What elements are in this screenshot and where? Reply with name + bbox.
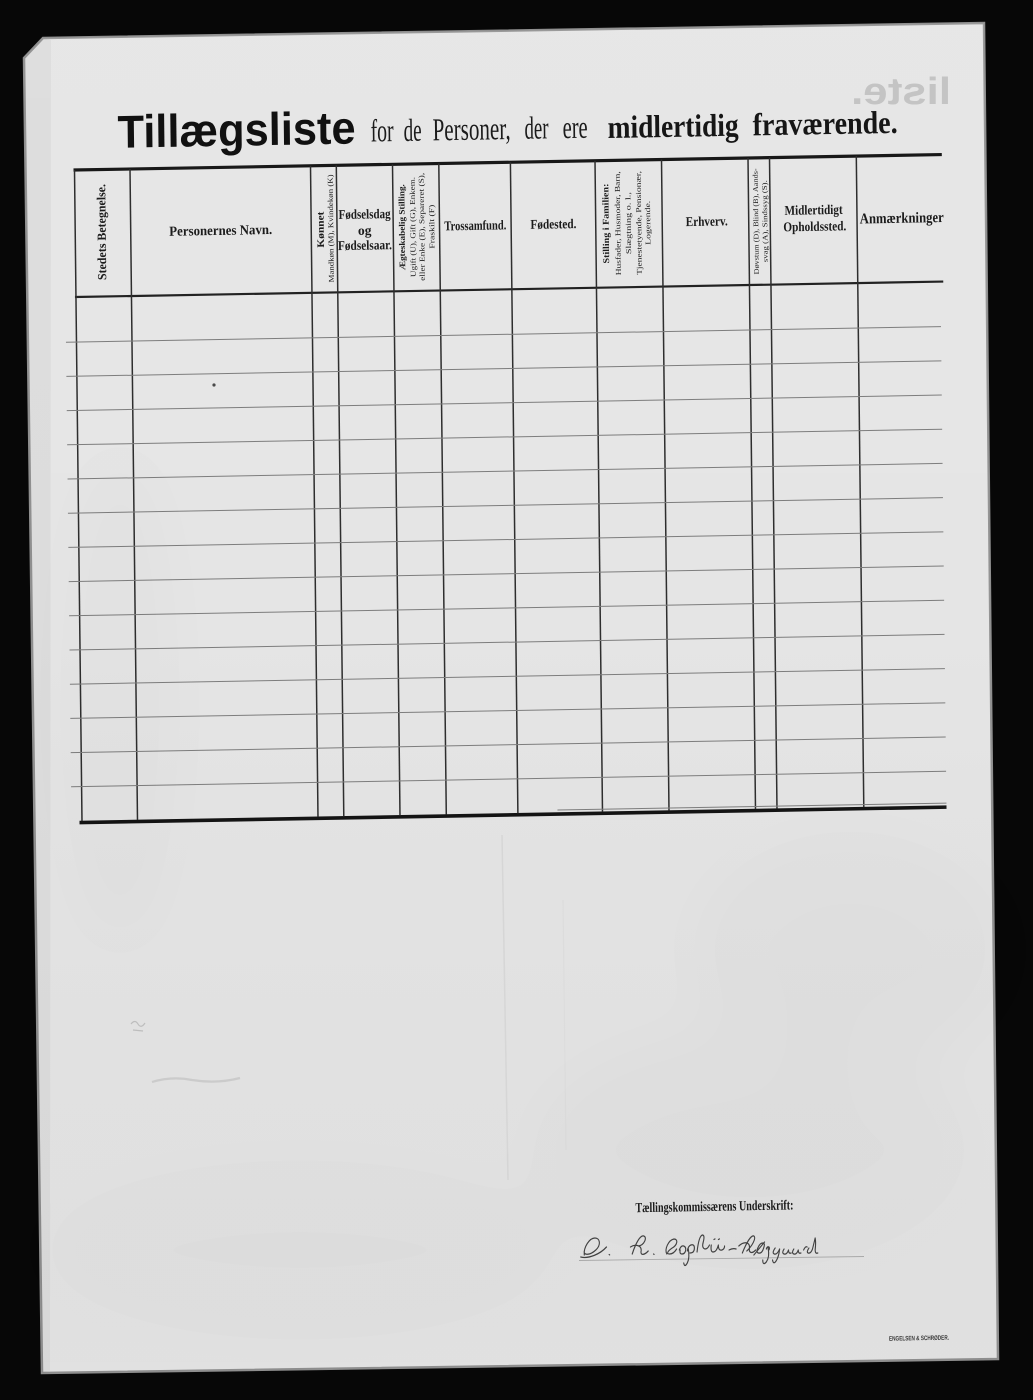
svg-text:Fødselsdag: Fødselsdag: [338, 206, 390, 222]
svg-text:for: for: [370, 112, 394, 148]
svg-text:Fraskilt (F): Fraskilt (F): [427, 204, 437, 249]
svg-text:Mandkøn (M), Kvindekøn (K): Mandkøn (M), Kvindekøn (K): [326, 174, 336, 283]
svg-text:Døvstum (D), Blind (B), Aands-: Døvstum (D), Blind (B), Aands-: [752, 168, 761, 275]
svg-text:Stilling i Familien:: Stilling i Familien:: [600, 183, 611, 263]
svg-text:Husfader, Husmoder, Barn,: Husfader, Husmoder, Barn,: [613, 171, 623, 275]
svg-text:Midlertidigt: Midlertidigt: [785, 202, 844, 218]
svg-text:Ægteskabelig Stilling.: Ægteskabelig Stilling.: [396, 184, 407, 270]
svg-text:ENGELSEN & SCHRØDER.: ENGELSEN & SCHRØDER.: [889, 1335, 949, 1343]
svg-text:Opholdssted.: Opholdssted.: [783, 218, 846, 234]
svg-text:Personernes Navn.: Personernes Navn.: [169, 223, 272, 240]
svg-text:der: der: [524, 109, 549, 145]
svg-text:Anmærkninger: Anmærkninger: [860, 210, 944, 227]
svg-text:Slægtning o. l.,: Slægtning o. l.,: [623, 192, 633, 254]
svg-text:fraværende.: fraværende.: [752, 104, 897, 143]
svg-text:midlertidig: midlertidig: [607, 107, 738, 145]
svg-text:Logerende.: Logerende.: [643, 201, 653, 245]
svg-text:eller Enke (E), Separeret (S),: eller Enke (E), Separeret (S),: [417, 173, 427, 281]
svg-text:Fødselsaar.: Fødselsaar.: [338, 237, 392, 253]
svg-text:svag (A), Sindssyg (S).: svag (A), Sindssyg (S).: [761, 180, 770, 262]
svg-text:Trossamfund.: Trossamfund.: [444, 217, 506, 233]
svg-text:de: de: [403, 112, 421, 148]
svg-text:Personer,: Personer,: [432, 110, 510, 147]
svg-text:Erhverv.: Erhverv.: [686, 213, 728, 229]
svg-text:og: og: [358, 223, 372, 238]
svg-text:ere: ere: [562, 109, 587, 145]
svg-text:Fødested.: Fødested.: [530, 216, 576, 232]
svg-text:Stedets Betegnelse.: Stedets Betegnelse.: [94, 184, 109, 280]
svg-text:Tillægsliste: Tillægsliste: [117, 102, 356, 158]
